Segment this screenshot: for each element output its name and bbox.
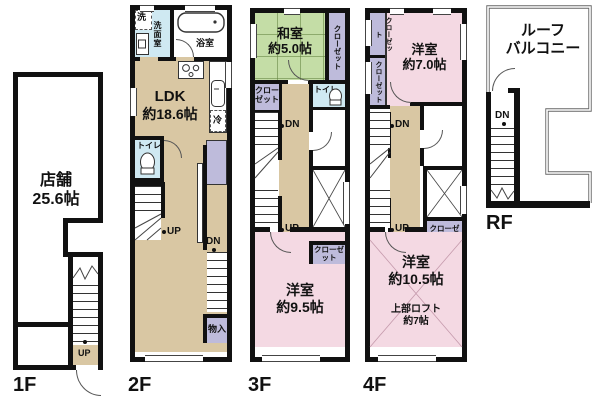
bedroom-4f-top-name: 洋室 [387, 42, 462, 57]
sink-icon [211, 80, 225, 107]
room-shop: 店舗 25.6帖 [20, 172, 92, 210]
closet-4f-a-label: クローゼット [373, 14, 393, 54]
stair-winder-4f [370, 148, 390, 180]
window [460, 24, 467, 60]
floor-label-2f: 2F [128, 374, 151, 397]
window [433, 8, 451, 15]
window [145, 355, 203, 362]
closet-3f-left-label: クローゼット [255, 87, 279, 105]
ldk-size: 約18.6帖 [135, 106, 205, 123]
storage-label: 物入 [207, 324, 227, 335]
floor-label-1f: 1F [13, 374, 36, 397]
window [390, 8, 404, 15]
window [343, 182, 350, 224]
stair-winder-3f [255, 148, 278, 180]
stairs-4f-dn [370, 112, 390, 148]
stair-dot [83, 340, 87, 344]
window [140, 5, 154, 12]
wall-segment [508, 88, 516, 93]
bedroom-3f-size: 約9.5帖 [255, 299, 345, 316]
washroom-label: 洗面室 [152, 13, 163, 55]
window [130, 88, 137, 116]
stair-dn-label-4f: DN [395, 119, 409, 130]
closet-3f-small-label: クローゼット [313, 246, 345, 263]
fridge-label: 冷 [213, 115, 222, 126]
window [262, 355, 320, 362]
wall-segment [13, 322, 70, 327]
stair-dot [390, 124, 394, 128]
wall-segment [370, 105, 390, 109]
wall-segment [420, 106, 424, 130]
bedroom-4f-size: 約10.5帖 [370, 271, 462, 288]
ldk-name: LDK [135, 88, 205, 106]
entry-door-arc-1f [76, 370, 101, 396]
stairs-2f-dn [207, 252, 227, 312]
roof-balcony-line2: バルコニー [500, 40, 586, 58]
floor-label-4f: 4F [363, 374, 386, 397]
loft-label: 上部ロフト 約7帖 [370, 304, 462, 328]
stair-dn-label-rf: DN [495, 110, 509, 121]
room-ldk-label: LDK 約18.6帖 [135, 88, 205, 122]
stairs-3f-up [255, 190, 278, 228]
wall-segment [203, 145, 207, 250]
bedroom-4f-top-size: 約7.0帖 [387, 57, 462, 72]
washbasin-icon [136, 33, 149, 55]
stair-up-label-1f: UP [78, 348, 91, 358]
bath-label: 浴室 [196, 38, 214, 49]
loft-name: 上部ロフト [370, 304, 462, 316]
stairs-3f-dn [255, 112, 278, 148]
wall-segment [278, 112, 282, 160]
window [365, 20, 372, 46]
floor-label-rf: RF [486, 212, 513, 235]
wall-segment [135, 57, 140, 61]
wall-segment [158, 57, 176, 61]
wall-segment [278, 196, 282, 232]
stair-dn-label-2f: DN [206, 236, 220, 247]
washitsu-name: 和室 [255, 26, 325, 41]
wall-segment [279, 84, 282, 110]
closet-3f-right-label: クローゼット [332, 16, 343, 78]
bedroom-4f-label: 洋室 約10.5帖 [370, 254, 462, 287]
bedroom-3f-name: 洋室 [255, 282, 345, 299]
stair-winder-2f [135, 214, 161, 240]
cabinet-strip [206, 140, 227, 185]
balcony-x-4f [427, 170, 462, 217]
closet-door-line [385, 13, 387, 105]
stairs-2f-up [135, 186, 161, 214]
washitsu-size: 約5.0帖 [255, 41, 325, 56]
roof-balcony-label: ルーフ バルコニー [500, 22, 586, 57]
toilet-icon-3f [328, 88, 343, 106]
stairs-rf-dn [491, 128, 514, 188]
wall-segment [309, 110, 313, 132]
stair-dot [502, 122, 506, 126]
room-shop-size: 25.6帖 [20, 191, 92, 210]
stair-dn-label-3f: DN [285, 119, 299, 130]
wall-notch-1f [63, 218, 103, 257]
hallway-3f [279, 84, 309, 232]
bedroom-4f-top-label: 洋室 約7.0帖 [387, 42, 462, 73]
toilet-label-2f: トイレ [137, 141, 161, 150]
window [284, 8, 300, 15]
bedroom-4f-name: 洋室 [370, 254, 462, 271]
bedroom-3f-label: 洋室 約9.5帖 [255, 282, 345, 315]
bathtub-icon [177, 12, 225, 33]
wall-rf-bottom [486, 201, 590, 208]
stair-break-line-rf [491, 186, 514, 202]
window [378, 355, 436, 362]
loft-size: 約7帖 [370, 316, 462, 328]
room-shop-name: 店舗 [20, 172, 92, 191]
wall-segment [161, 182, 165, 218]
wall-segment [309, 107, 345, 110]
roof-balcony-line1: ルーフ [500, 22, 586, 40]
stair-dot [162, 230, 166, 234]
stair-up-label-2f: UP [167, 226, 181, 237]
stairs-4f-up [370, 190, 390, 228]
wall-segment [420, 148, 424, 166]
washitsu-label: 和室 約5.0帖 [255, 26, 325, 57]
wall-stairhouse-right [514, 88, 520, 207]
stairs-1f-up [73, 285, 98, 345]
closet-4f-b-label: クローゼット [373, 60, 383, 104]
floor-label-3f: 3F [248, 374, 271, 397]
window [250, 24, 257, 58]
stair-break-line [73, 262, 98, 284]
window [185, 5, 215, 12]
balcony-x-3f [313, 170, 345, 227]
floor-plan: 店舗 25.6帖 UP 1F 洗 洗面室 浴室 [0, 0, 600, 400]
window [460, 186, 467, 214]
toilet-icon-2f [139, 152, 156, 175]
stair-dot [280, 124, 284, 128]
window [225, 62, 232, 88]
window [365, 62, 372, 94]
washer-label: 洗 [137, 12, 146, 23]
stove-icon [178, 61, 204, 79]
